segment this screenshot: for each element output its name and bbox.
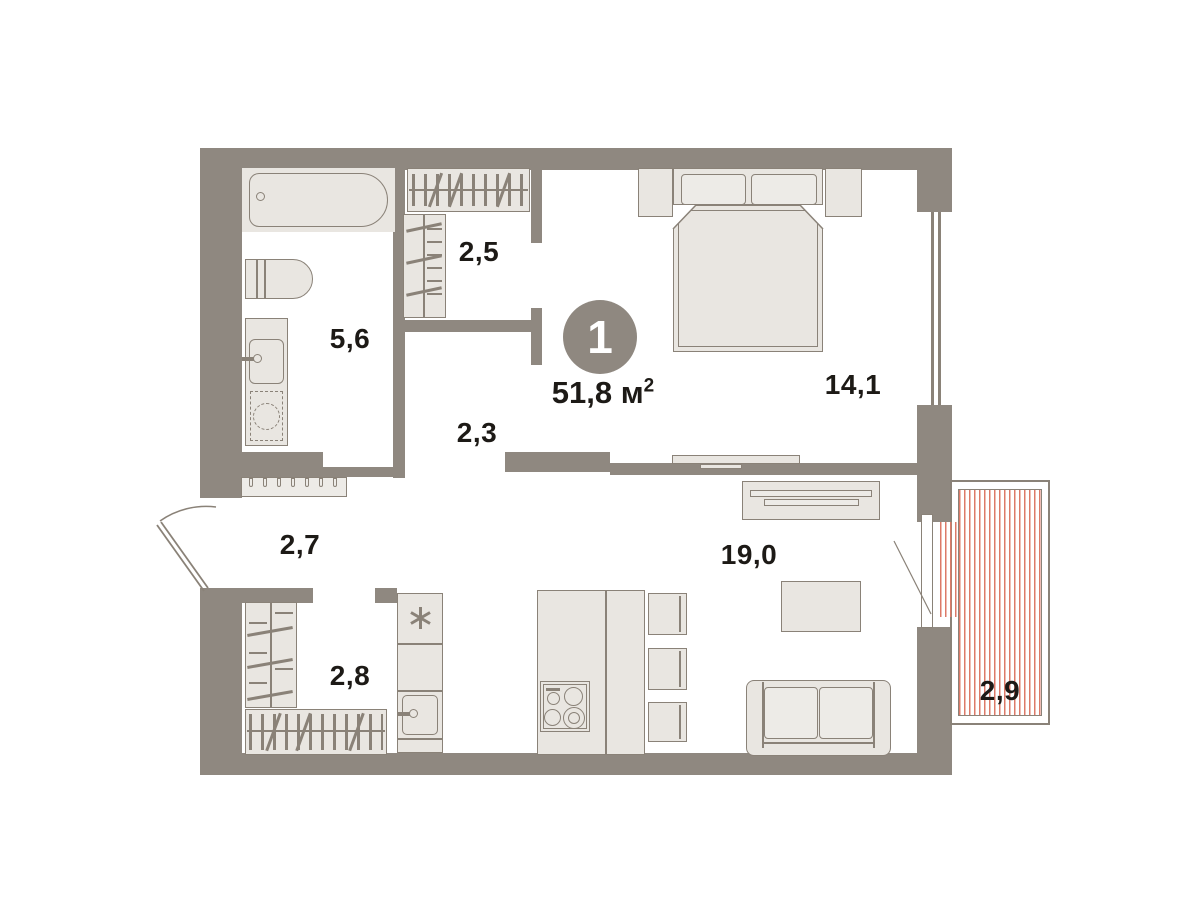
nightstand [638, 168, 673, 217]
entrance-door-leaf [161, 522, 208, 588]
wall-wardrobe-right-upper [531, 168, 542, 243]
shelf-board [275, 612, 293, 614]
coat-rack-hook [333, 478, 337, 487]
tv-base [700, 464, 742, 469]
shelf-board [275, 668, 293, 670]
burner [544, 709, 561, 726]
bathtub-drain [256, 192, 265, 201]
shelf-board [427, 280, 442, 282]
burner [547, 692, 560, 705]
total-area-label: 51,8 м2 [552, 375, 654, 411]
rooms-count: 1 [587, 310, 613, 364]
wall-wardrobe-bottom [405, 320, 542, 332]
stool-back [679, 705, 681, 739]
bathtub [249, 173, 388, 227]
toilet-tank-line-1 [256, 260, 258, 298]
wall-top-right-corner [917, 148, 952, 212]
coat-rack-hook [249, 478, 253, 487]
kitchen-unit-divider [398, 643, 442, 645]
wall-hall-living-divider [505, 452, 610, 472]
shelf-board [249, 652, 267, 654]
pillow [751, 174, 817, 205]
bar-stool [648, 702, 687, 742]
tv [672, 455, 800, 464]
wardrobe-rail-line [409, 189, 528, 191]
bedroom-window-outer-line [931, 212, 934, 405]
coffee-table [781, 581, 861, 632]
room-label-bedroom: 14,1 [825, 369, 882, 401]
room-label-hallway-inner: 2,3 [457, 417, 497, 449]
balcony-door-hatch [940, 522, 958, 617]
coat-rack-hook [319, 478, 323, 487]
nightstand [825, 168, 862, 217]
bedroom-window-inner-line [938, 212, 941, 405]
burner-bar [546, 688, 560, 691]
wall-bathroom-bottom [242, 452, 323, 478]
shelf-board [427, 241, 442, 243]
shelf-board [249, 622, 267, 624]
wall-bathroom-door-threshold [323, 467, 393, 477]
burner-inner [568, 712, 580, 724]
coat-rack-hook [291, 478, 295, 487]
bar-stool [648, 648, 687, 690]
pillow [681, 174, 746, 205]
shelf-divider [423, 215, 425, 317]
rooms-count-badge: 1 [563, 300, 637, 374]
tv-console-shelf [750, 490, 872, 497]
closet28-rail-line [247, 730, 385, 732]
total-area-unit: м [621, 375, 644, 410]
toilet-tank-line-2 [264, 260, 266, 298]
sofa-cushion [819, 687, 873, 739]
bathroom-faucet-knob [253, 354, 262, 363]
wall-bedroom-living-divider [610, 463, 917, 475]
entrance-door-leaf [157, 525, 204, 591]
coat-rack-hook [263, 478, 267, 487]
shelf-board [249, 682, 267, 684]
room-label-hallway-entry: 2,7 [280, 529, 320, 561]
wall-right-pier [917, 405, 952, 522]
shelf-divider [270, 603, 272, 707]
sofa-back-line [764, 742, 873, 744]
wall-left-upper [200, 148, 242, 498]
wall-right-lower [917, 627, 952, 755]
wall-top-exterior [200, 148, 952, 170]
wall-closet28-top [242, 588, 313, 603]
room-label-wardrobe-top: 2,5 [459, 236, 499, 268]
balcony-door-leaf [921, 514, 933, 628]
wall-wardrobe-right-lower [531, 308, 542, 365]
kitchen-unit-divider [398, 738, 442, 740]
island-divider [605, 591, 607, 754]
coat-rack-hook [305, 478, 309, 487]
room-label-bathroom: 5,6 [330, 323, 370, 355]
wall-closet28-top-stub [375, 588, 397, 603]
bar-stool [648, 593, 687, 635]
total-area-value: 51,8 [552, 375, 612, 410]
total-area-superscript: 2 [644, 376, 655, 397]
room-label-balcony: 2,9 [980, 675, 1020, 707]
stool-back [679, 596, 681, 632]
wall-bottom-exterior [200, 753, 952, 775]
entrance-door-swing-arc-icon [160, 506, 216, 521]
kitchen-unit-divider [398, 690, 442, 692]
stool-back [679, 651, 681, 687]
burner [564, 687, 583, 706]
room-label-living-kitchen: 19,0 [721, 539, 778, 571]
sofa-cushion [764, 687, 818, 739]
room-label-wardrobe-bottom: 2,8 [330, 660, 370, 692]
coat-rack-hook [277, 478, 281, 487]
kitchen-faucet-knob [409, 709, 418, 718]
wall-left-lower [200, 588, 242, 755]
washing-machine-drum [253, 403, 280, 430]
shelf-board [427, 293, 442, 295]
sofa-armrest-line [873, 682, 875, 748]
bed-inner-line [678, 210, 818, 347]
shelf-board [427, 267, 442, 269]
floor-plan: 5,6 2,5 2,3 14,1 2,7 2,8 19,0 2,9 1 51,8… [0, 0, 1200, 923]
shelf-board [427, 228, 442, 230]
tv-console-shelf [764, 499, 859, 506]
